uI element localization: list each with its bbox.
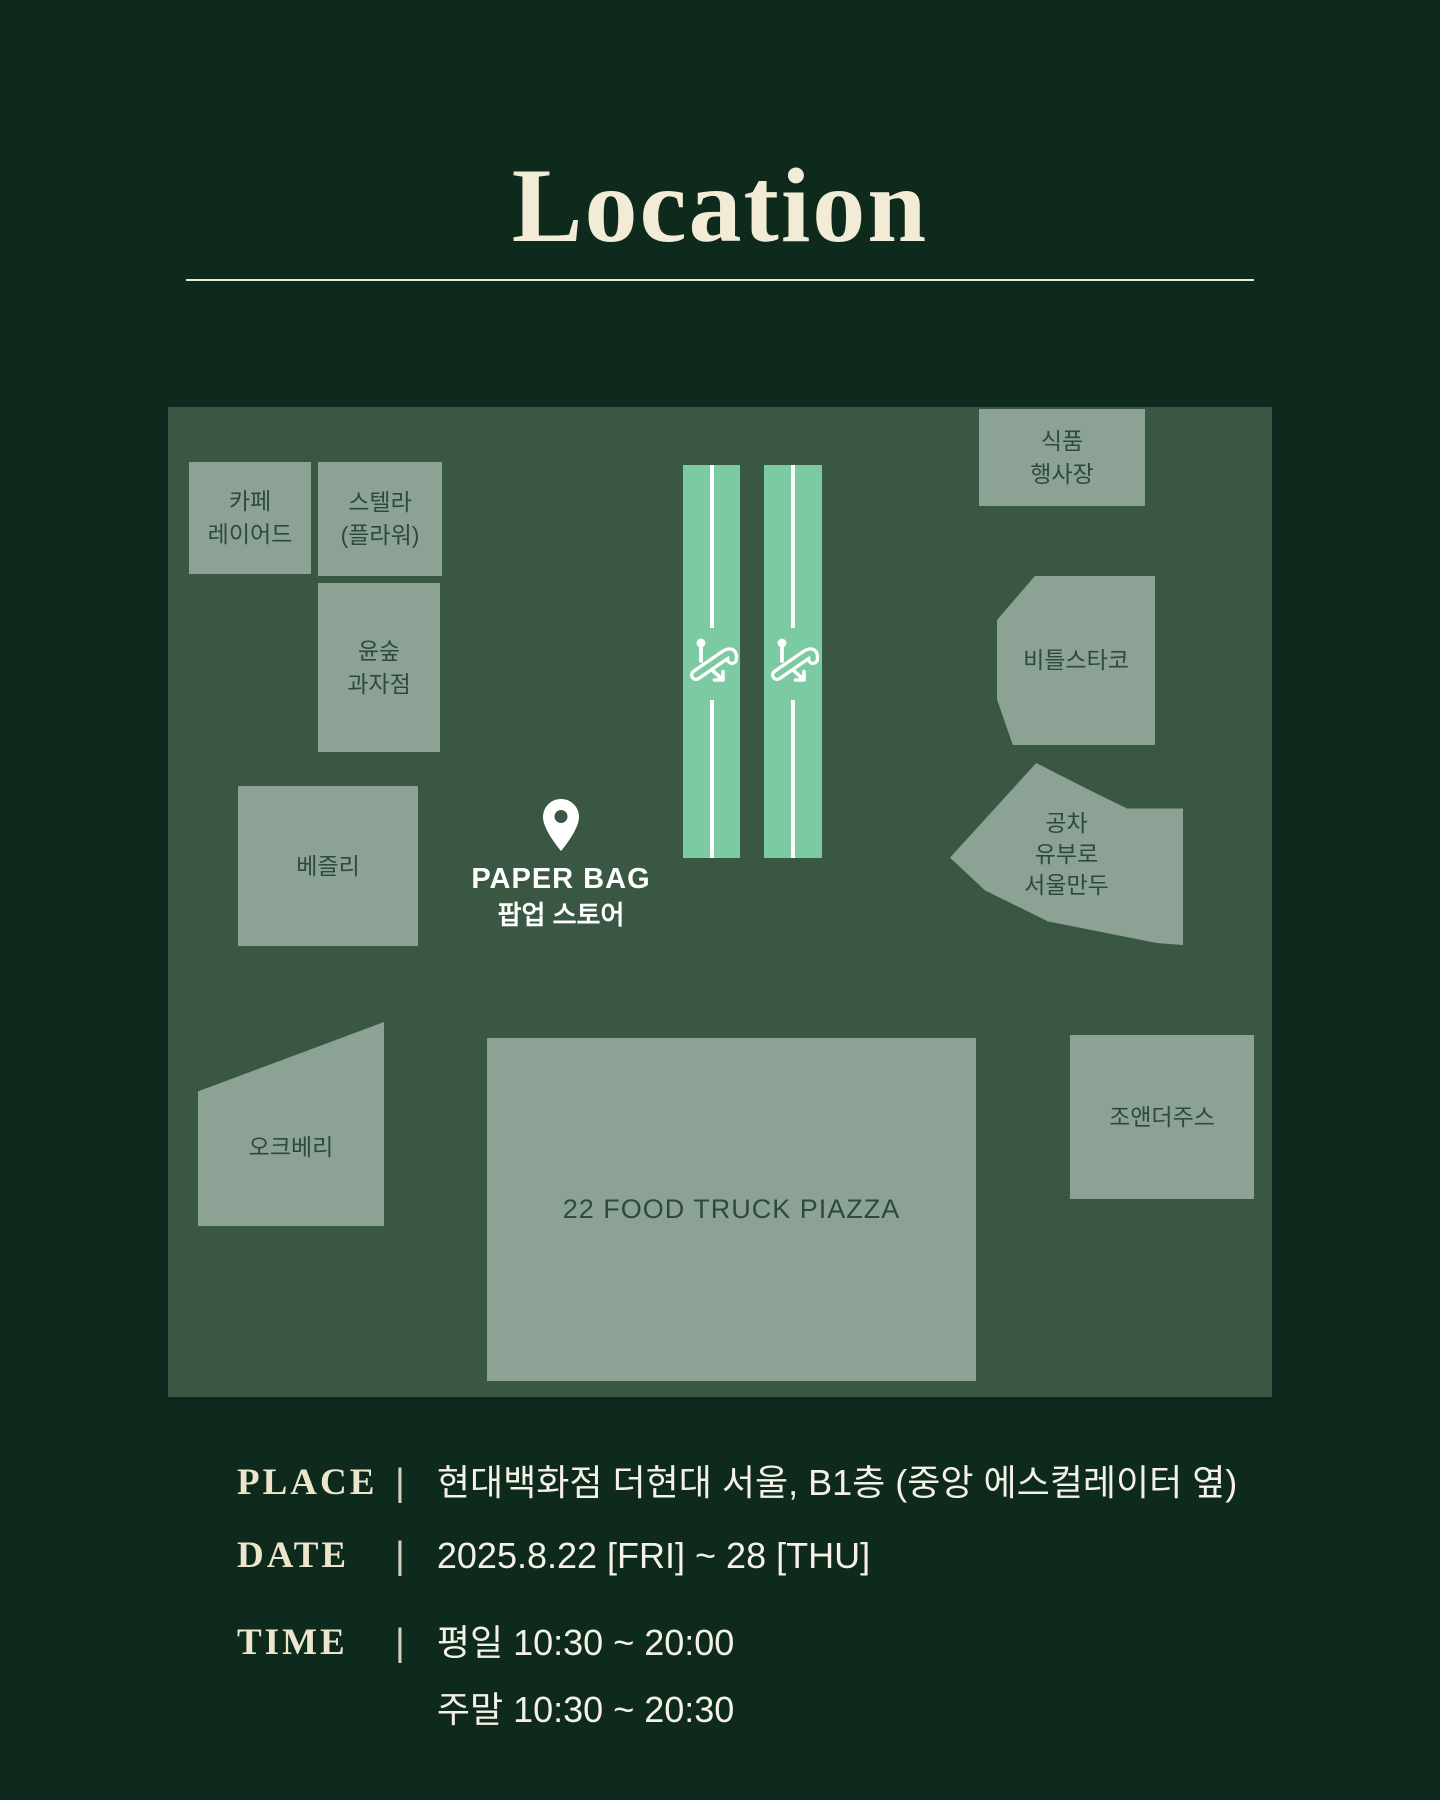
escalator-icon: [764, 633, 822, 691]
title-divider: [186, 279, 1254, 281]
map-block-bezzly: 베즐리: [238, 786, 418, 946]
map-block-food-truck-piazza: 22 FOOD TRUCK PIAZZA: [487, 1038, 976, 1381]
escalator-strip-right: [764, 465, 822, 858]
info-row-date: DATE | 2025.8.22 [FRI] ~ 28 [THU]: [237, 1533, 870, 1579]
separator-bar: |: [395, 1460, 405, 1506]
place-value: 현대백화점 더현대 서울, B1층 (중앙 에스컬레이터 옆): [437, 1460, 1237, 1506]
popup-store-name: PAPER BAG: [436, 863, 686, 895]
map-block-cafe-layered: 카페 레이어드: [189, 462, 311, 574]
time-values: 평일 10:30 ~ 20:00 주말 10:30 ~ 20:30: [437, 1620, 734, 1733]
escalator-strip-left: [683, 465, 740, 858]
info-row-place: PLACE | 현대백화점 더현대 서울, B1층 (중앙 에스컬레이터 옆): [237, 1460, 1237, 1506]
separator-bar: |: [395, 1620, 405, 1666]
floor-map: 카페 레이어드 스텔라 (플라워) 윤숲 과자점 베즐리 오크베리 식품 행사장…: [168, 407, 1272, 1397]
map-block-beetles-taco: 비틀스타코: [997, 576, 1155, 745]
page-title: Location: [0, 150, 1440, 262]
escalator-rail-line: [710, 700, 714, 858]
place-label: PLACE: [237, 1460, 395, 1506]
time-label: TIME: [237, 1620, 395, 1666]
date-value: 2025.8.22 [FRI] ~ 28 [THU]: [437, 1533, 870, 1579]
info-row-time: TIME | 평일 10:30 ~ 20:00 주말 10:30 ~ 20:30: [237, 1620, 734, 1733]
poster: Location 카페 레이어드 스텔라 (플라워) 윤숲 과자점 베즐리 오크…: [0, 0, 1440, 1800]
escalator-icon: [683, 633, 741, 691]
escalator-rail-line: [791, 465, 795, 628]
escalator-rail-line: [791, 700, 795, 858]
map-block-stella-flower: 스텔라 (플라워): [318, 462, 442, 576]
separator-bar: |: [395, 1533, 405, 1579]
escalator-rail-line: [710, 465, 714, 628]
map-block-gongcha-mandu: 공차 유부로 서울만두: [950, 763, 1183, 945]
map-block-joe-and-the-juice: 조앤더주스: [1070, 1035, 1254, 1199]
date-label: DATE: [237, 1533, 395, 1579]
map-block-oakberry: 오크베리: [198, 1022, 384, 1226]
time-weekday: 평일 10:30 ~ 20:00: [437, 1620, 734, 1666]
time-weekend: 주말 10:30 ~ 20:30: [437, 1687, 734, 1733]
map-block-food-event-hall: 식품 행사장: [979, 409, 1145, 506]
map-block-yoonsoop-bakery: 윤숲 과자점: [318, 583, 440, 752]
location-pin-icon: [543, 799, 579, 851]
popup-store-subtitle: 팝업 스토어: [436, 900, 686, 930]
popup-store-marker: PAPER BAG 팝업 스토어: [436, 799, 686, 930]
